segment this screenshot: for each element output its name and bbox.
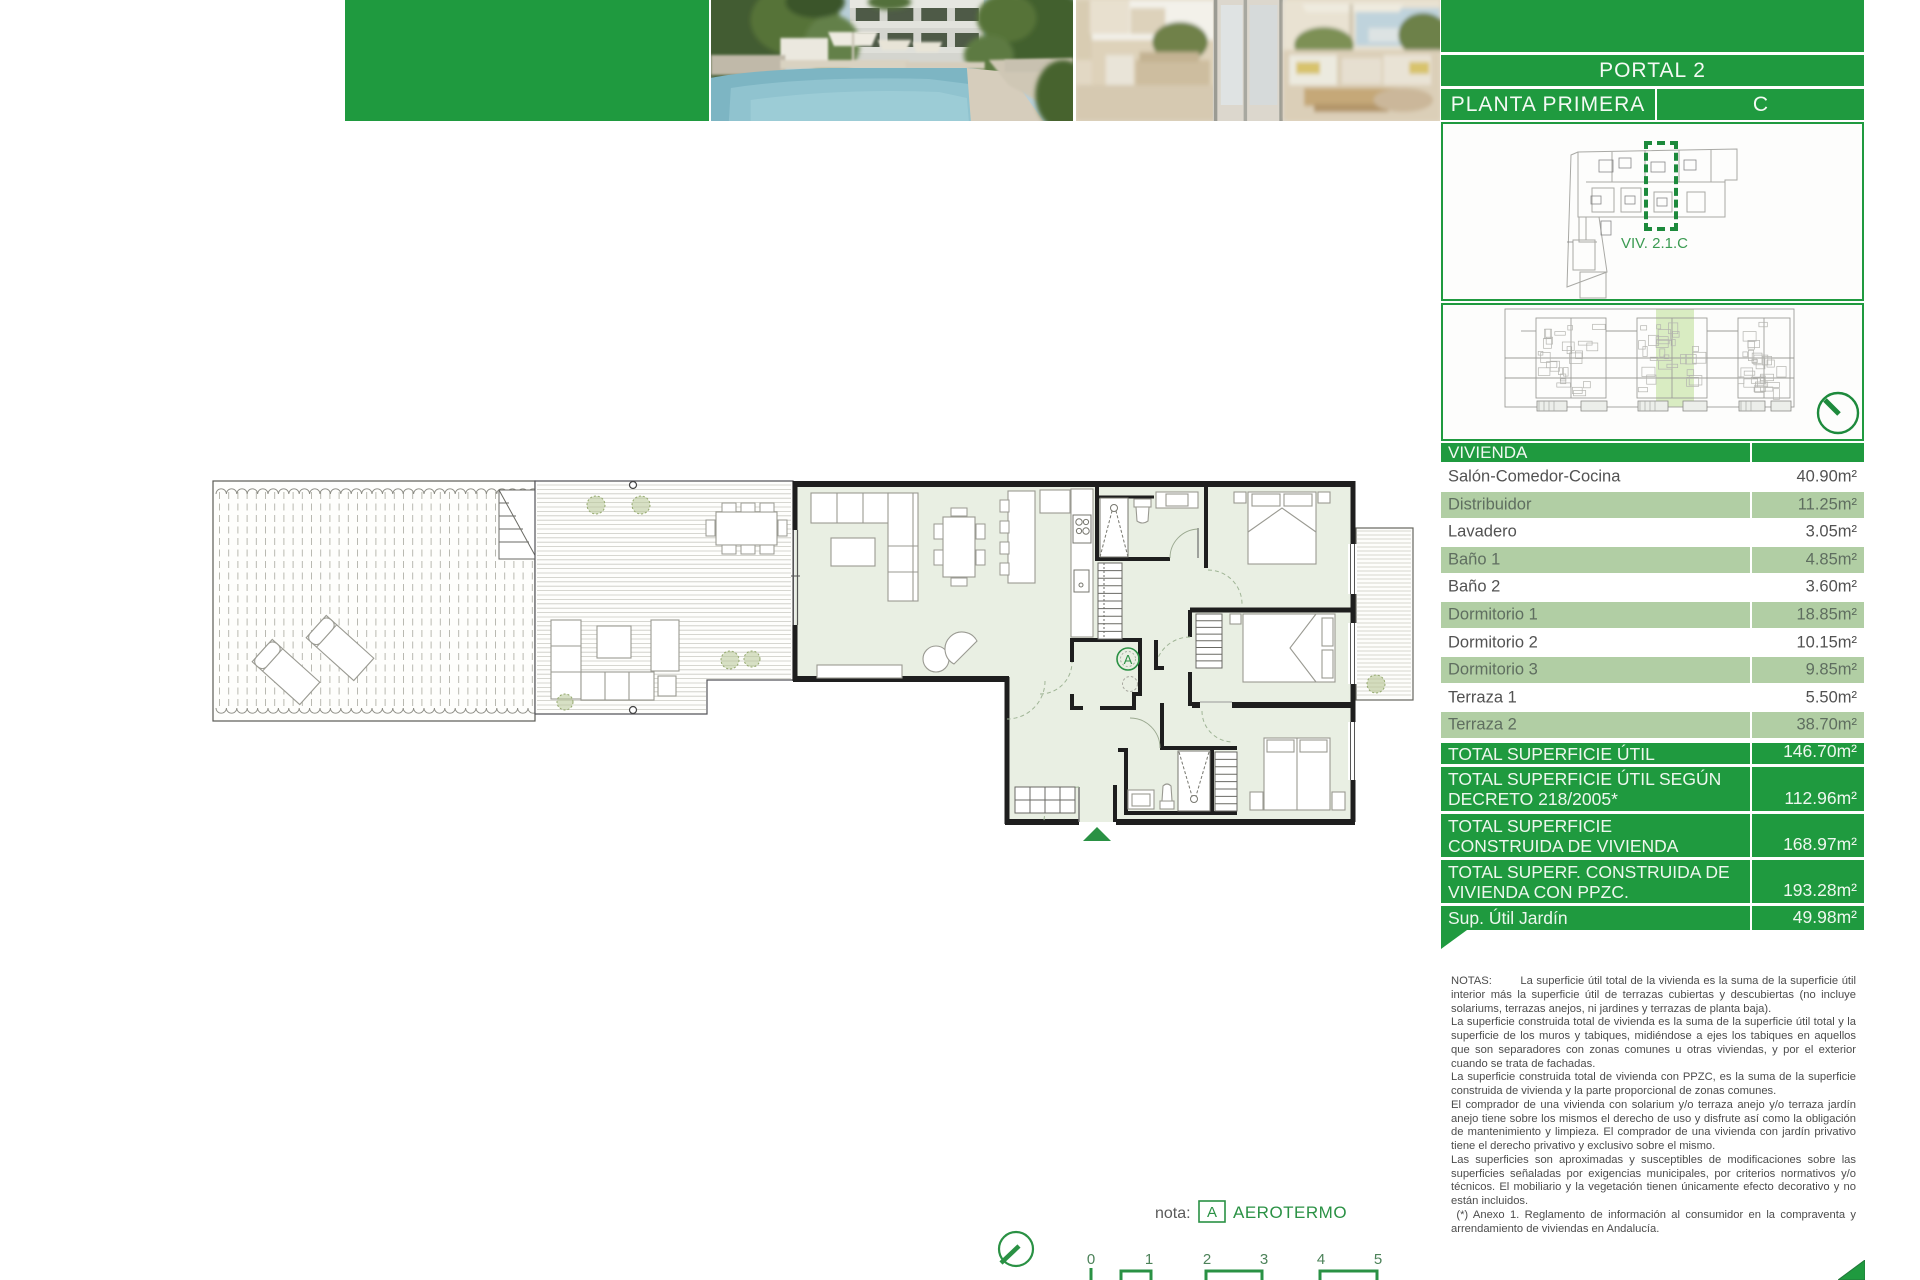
svg-text:1: 1 [1145, 1251, 1153, 1268]
svg-text:nota:: nota: [1155, 1205, 1191, 1222]
svg-text:5: 5 [1374, 1251, 1382, 1268]
svg-text:0: 0 [1087, 1251, 1095, 1268]
svg-text:AEROTERMO: AEROTERMO [1233, 1203, 1347, 1222]
svg-text:4: 4 [1317, 1251, 1325, 1268]
svg-text:A: A [1207, 1204, 1217, 1221]
svg-text:A: A [1124, 652, 1133, 667]
svg-text:2: 2 [1203, 1251, 1211, 1268]
svg-text:3: 3 [1260, 1251, 1268, 1268]
